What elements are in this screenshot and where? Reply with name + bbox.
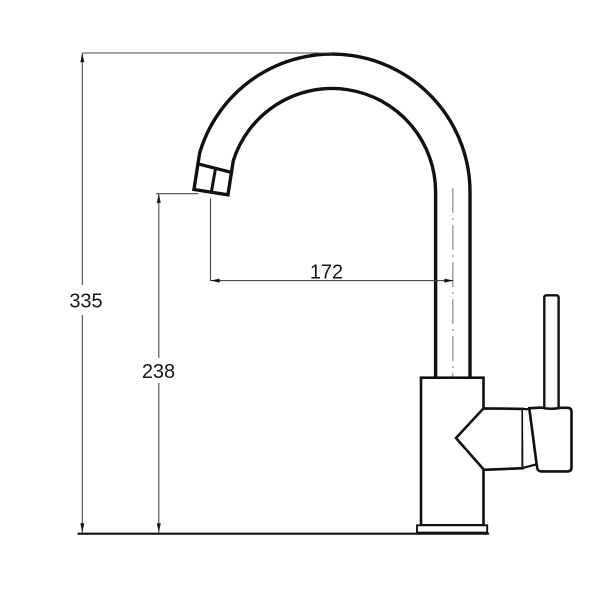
svg-text:172: 172 (310, 262, 343, 284)
svg-text:335: 335 (69, 291, 102, 313)
svg-text:238: 238 (142, 361, 175, 383)
